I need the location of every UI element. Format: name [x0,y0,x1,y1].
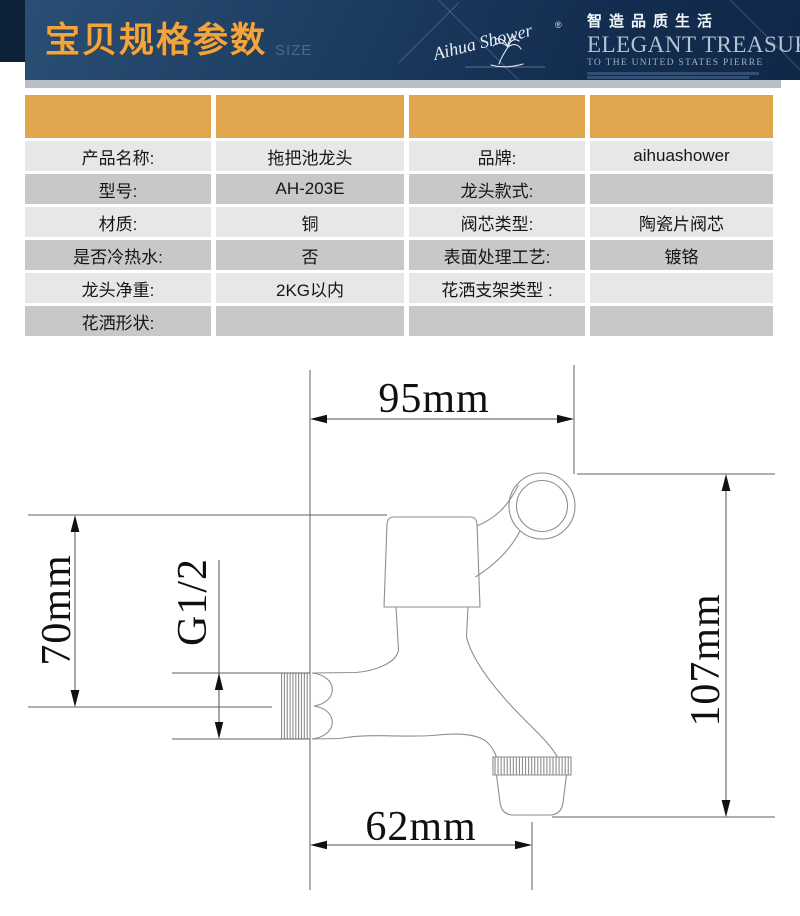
table-cell: 铜 [216,207,404,237]
banner-left-strip [0,0,25,62]
banner: 宝贝规格参数 SIZE Aihua Shower ® 智造品质生活 ELEGAN… [25,0,800,80]
table-cell: 2KG以内 [216,273,404,303]
table-cell: 花洒形状: [25,306,211,336]
table-cell [409,306,585,336]
slogan-english: ELEGANT TREASURES [587,32,797,58]
thread-size-label: G1/2 [170,558,216,646]
table-cell: 龙头净重: [25,273,211,303]
technical-drawing: 95mm 70mm G1/2 107mm 62mm [0,360,800,916]
table-cell [590,306,773,336]
table-cell: 材质: [25,207,211,237]
table-cell: 镀铬 [590,240,773,270]
faucet-aerator-body [497,775,567,815]
table-cell: 表面处理工艺: [409,240,585,270]
slogan-subline: TO THE UNITED STATES PIERRE [587,58,797,68]
dim-width-bottom-label: 62mm [365,804,476,850]
table-cell: 型号: [25,174,211,204]
table-cell: aihuashower [590,141,773,171]
table-cell: AH-203E [216,174,404,204]
divider-bar [25,80,781,88]
page-title: 宝贝规格参数 [45,12,267,63]
slogan-chinese: 智造品质生活 [587,10,797,31]
dim-width-top-label: 95mm [378,376,489,422]
table-cell: 龙头款式: [409,174,585,204]
dim-height-right-label: 107mm [683,593,729,726]
table-cell: 品牌: [409,141,585,171]
table-cell: 否 [216,240,404,270]
faucet-mount-ring-inner [517,481,568,532]
table-cell: 阀芯类型: [409,207,585,237]
table-cell: 拖把池龙头 [216,141,404,171]
table-header-cell [25,95,211,138]
faucet-outline [281,473,575,815]
faucet-inlet-nut [312,673,332,739]
dim-height-left-label: 70mm [34,554,80,665]
table-cell: 是否冷热水: [25,240,211,270]
table-cell: 产品名称: [25,141,211,171]
table-cell [590,273,773,303]
brand-reg-mark: ® [555,20,562,30]
brand-logo: Aihua Shower ® [395,0,605,80]
faucet-mount-ring-outer [509,473,575,539]
table-cell: 花洒支架类型 : [409,273,585,303]
table-cell [216,306,404,336]
brand-script-text: Aihua Shower [430,20,535,64]
table-cell: 陶瓷片阀芯 [590,207,773,237]
table-header-cell [590,95,773,138]
table-header-cell [216,95,404,138]
table-cell [590,174,773,204]
banner-slogan-block: 智造品质生活 ELEGANT TREASURES TO THE UNITED S… [587,10,797,80]
spec-table: 产品名称:拖把池龙头品牌:aihuashower型号:AH-203E龙头款式:材… [25,95,773,336]
page-subtitle: SIZE [275,42,312,59]
table-header-cell [409,95,585,138]
product-spec-page: 宝贝规格参数 SIZE Aihua Shower ® 智造品质生活 ELEGAN… [0,0,800,916]
fine-print-lines [587,72,797,80]
faucet-handle-cap [384,517,480,607]
